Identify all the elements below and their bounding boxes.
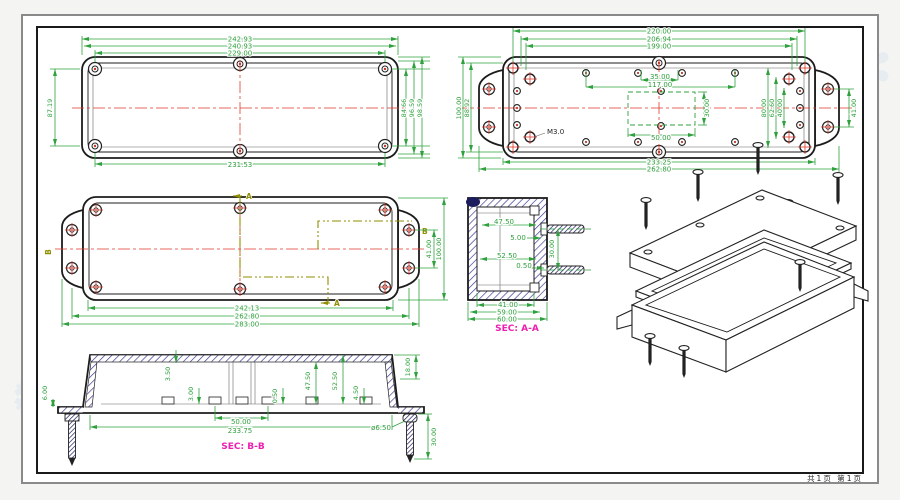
cad-drawing: ✻✻ ❆✻ ❆✻ ✻❆ 共1页 第1页 242.93 240.93 229.00… [0, 0, 900, 500]
sec-aa-label: SEC: A-A [495, 324, 539, 334]
dim-v2-left-1: 88.92 [463, 99, 471, 118]
section-a-top-label: A [246, 192, 252, 201]
drawing-sheet: ✻✻ ❆✻ ❆✻ ✻❆ 共1页 第1页 242.93 240.93 229.00… [0, 0, 900, 500]
dim-v2-rect-w: 50.00 [651, 134, 671, 142]
dim-v5-left: 6.00 [41, 386, 49, 400]
dim-v5-top-5: 4.50 [352, 386, 360, 400]
dim-v2-top-2: 199.00 [647, 43, 672, 51]
dim-v1-left: 87.19 [46, 99, 54, 118]
dim-v5-top-3: 47.50 [304, 372, 312, 391]
dim-v5-screw-len: 30.00 [430, 428, 438, 447]
dim-v3-bottom-2: 283.00 [235, 321, 260, 329]
dim-v5-bottom-1: 233.75 [228, 427, 253, 435]
dim-v1-bottom: 231.53 [228, 161, 253, 169]
dim-v2-right-1: 62.60 [768, 99, 776, 118]
dim-v5-top-2: 0.50 [271, 389, 279, 403]
dim-v2-right-0: 80.00 [760, 99, 768, 118]
dim-v5-right: 18.00 [404, 358, 412, 377]
dim-v5-diameter: ø6.50 [371, 424, 391, 432]
page-label: 共1页 第1页 [807, 473, 863, 483]
dim-v5-bottom-0: 50.00 [231, 418, 251, 426]
view-base-inside: A A B B 242.13 262.80 283.00 41.00 100.0… [44, 192, 448, 329]
dim-v1-right-1: 96.59 [408, 99, 416, 118]
dim-v3-bottom-1: 262.80 [235, 313, 260, 321]
dim-v4-2: 52.50 [497, 252, 517, 260]
dim-v5-top-0: 3.50 [164, 367, 172, 381]
dim-v4-0: 47.50 [494, 218, 514, 226]
dim-v2-rect-h: 30.00 [703, 99, 711, 118]
dim-v2-row-0: 35.00 [650, 73, 670, 81]
dim-v4-1: 5.00 [510, 234, 526, 242]
dim-v2-top-0: 220.00 [647, 28, 672, 36]
section-b-left-label: B [44, 249, 53, 255]
dim-v1-right-2: 98.59 [416, 99, 424, 118]
dim-v2-left-0: 100.00 [455, 97, 463, 120]
dim-v2-bottom-1: 262.80 [647, 166, 672, 174]
section-a-bottom-label: A [334, 299, 340, 308]
dim-v2-right-2: 40.00 [776, 99, 784, 118]
seal-detail [466, 197, 480, 207]
dim-v5-top-1: 3.00 [187, 387, 195, 401]
dim-v1-right-0: 84.66 [400, 99, 408, 118]
sec-bb-label: SEC: B-B [221, 442, 265, 452]
thread-callout: M3.0 [547, 128, 564, 136]
dim-v4-right: 30.00 [548, 240, 556, 259]
dim-v1-top-2: 229.00 [228, 50, 253, 58]
dim-v3-right-1: 100.00 [435, 238, 443, 261]
dim-v4-bottom-2: 60.00 [497, 316, 517, 324]
dim-v2-row-1: 117.00 [648, 81, 673, 89]
dim-v2-flange: 41.00 [850, 99, 858, 118]
dim-v5-top-4: 52.50 [331, 372, 339, 391]
dim-v4-3: 0.50 [516, 262, 532, 270]
dim-v3-right-0: 41.00 [425, 240, 433, 259]
dim-v3-bottom-0: 242.13 [235, 305, 260, 313]
section-b-right-label: B [422, 227, 428, 236]
